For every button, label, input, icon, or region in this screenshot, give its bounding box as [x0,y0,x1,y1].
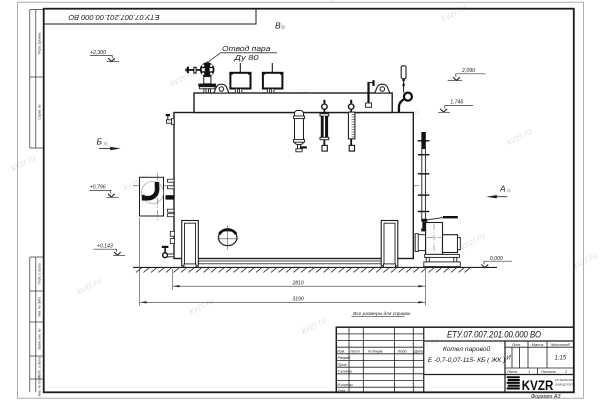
svg-text:ЕТУ.07.007.201.00.000 ВО: ЕТУ.07.007.201.00.000 ВО [68,13,159,22]
svg-text:Дата: Дата [413,349,424,353]
svg-text:Подп.: Подп. [398,349,408,353]
svg-text:ЗАВОД РЭП: ЗАВОД РЭП [555,383,574,387]
svg-text:Формат А3: Формат А3 [531,394,561,400]
svg-text:Масса: Масса [532,342,545,347]
svg-text:Б: Б [97,137,103,147]
svg-text:Н.контр.: Н.контр. [338,383,354,387]
svg-text:Изм.: Изм. [337,349,345,353]
svg-text:Отвод пара: Отвод пара [222,44,271,53]
svg-text:Т.контр.: Т.контр. [338,370,353,374]
svg-text:+0,796: +0,796 [90,185,106,191]
svg-text:N докум.: N докум. [368,349,383,353]
svg-text:Утв.: Утв. [338,389,347,393]
svg-text:Пров.: Пров. [338,363,348,367]
svg-text:Ду 80: Ду 80 [233,53,258,62]
svg-text:Все размеры для справок: Все размеры для справок [353,311,411,317]
svg-text:1:15: 1:15 [555,356,567,362]
svg-text:2,090: 2,090 [461,68,475,74]
svg-text:Лист: Лист [349,349,360,353]
svg-text:2810: 2810 [292,280,304,286]
svg-text:Инв. № подл.: Инв. № подл. [38,375,42,396]
svg-text:ЕТУ.07.007.201.00.000 ВО: ЕТУ.07.007.201.00.000 ВО [447,329,541,339]
svg-text:Справ. №: Справ. № [38,104,42,120]
svg-text:КОТЕЛЬНЫЙ: КОТЕЛЬНЫЙ [555,378,575,382]
svg-text:Подп. и дата: Подп. и дата [38,357,42,378]
svg-text:1: 1 [528,369,530,374]
svg-text:Лит.: Лит. [511,342,521,347]
svg-text:В: В [275,21,281,31]
svg-text:Лист: Лист [506,369,518,374]
svg-text:KVZR: KVZR [522,378,554,394]
svg-text:3190: 3190 [293,296,304,302]
svg-text:Котел паровой: Котел паровой [443,345,491,353]
svg-text:+0,143: +0,143 [97,244,113,250]
svg-text:Разраб.: Разраб. [338,356,352,360]
svg-text:И: И [506,356,511,362]
svg-text:Взам. инв. №: Взам. инв. № [38,328,42,349]
svg-text:А: А [499,183,506,193]
svg-text:Е -0,7-0,07-115- КБ ( ЖК ): Е -0,7-0,07-115- КБ ( ЖК ) [428,357,505,364]
svg-text:Инв. № дубл.: Инв. № дубл. [38,296,42,317]
svg-text:Перв. примен.: Перв. примен. [38,32,42,55]
svg-text:Масштаб: Масштаб [551,342,570,347]
svg-text:1,746: 1,746 [450,100,463,106]
svg-text:Листов: Листов [540,369,556,374]
svg-text:Подп. и дата: Подп. и дата [38,263,42,284]
